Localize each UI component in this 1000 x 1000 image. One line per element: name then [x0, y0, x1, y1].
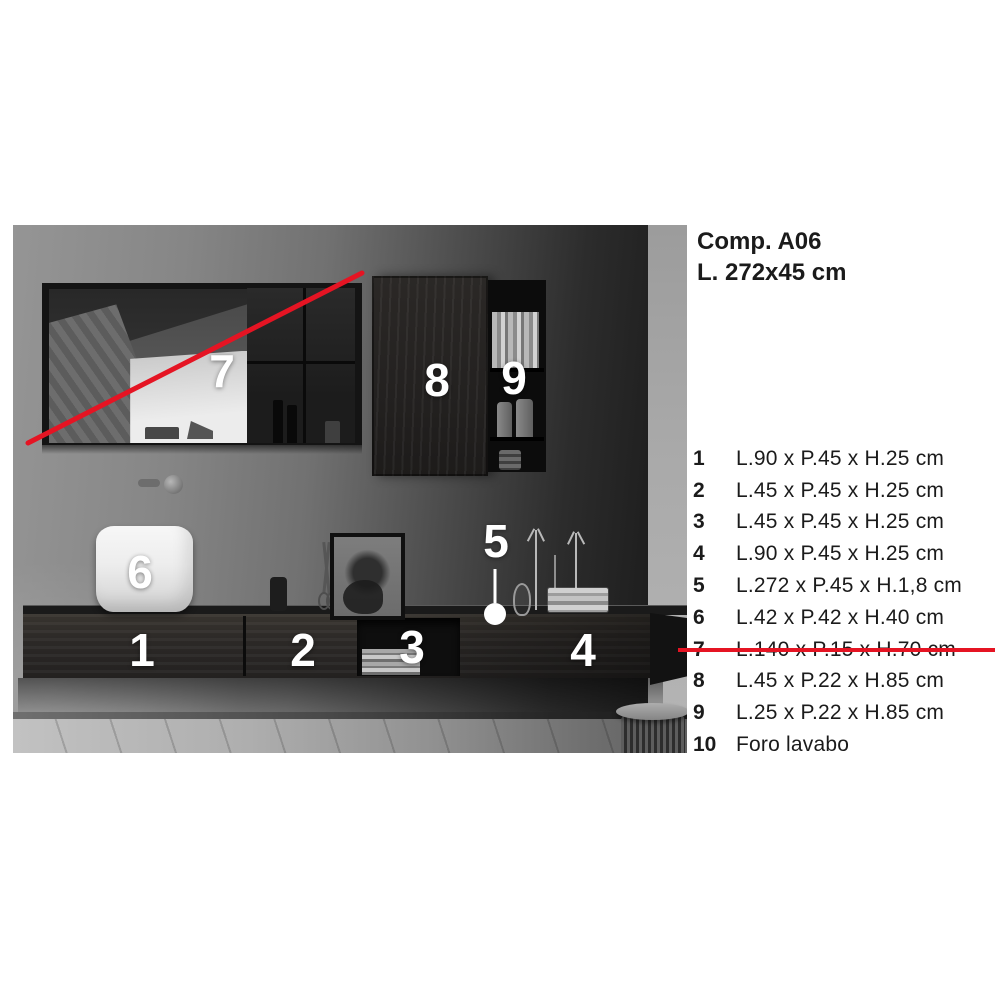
spec-num: 3 [693, 510, 736, 534]
photo-label-1: 1 [129, 627, 155, 673]
spec-row-2: 2 L.45 x P.45 x H.25 cm [693, 475, 1000, 507]
item-7-strikethrough-line [678, 648, 995, 652]
spec-num: 1 [693, 447, 736, 471]
spec-text: L.90 x P.45 x H.25 cm [736, 447, 944, 471]
spec-num: 2 [693, 479, 736, 503]
spec-text: L.90 x P.45 x H.25 cm [736, 542, 944, 566]
spec-num: 5 [693, 574, 736, 598]
callout-5-dot [484, 603, 506, 625]
mirror-crossout-line [28, 273, 362, 443]
spec-text: L.45 x P.45 x H.25 cm [736, 479, 944, 503]
photo-label-6: 6 [127, 549, 153, 595]
composition-size: L. 272x45 cm [697, 257, 846, 288]
spec-num: 6 [693, 606, 736, 630]
composition-title: Comp. A06 [697, 226, 846, 257]
spec-text: L.45 x P.45 x H.25 cm [736, 510, 944, 534]
spec-row-4: 4 L.90 x P.45 x H.25 cm [693, 538, 1000, 570]
spec-row-3: 3 L.45 x P.45 x H.25 cm [693, 507, 1000, 539]
spec-num: 8 [693, 669, 736, 693]
product-photo: 1 2 3 4 5 6 7 8 9 [13, 225, 687, 753]
spec-list: 1 L.90 x P.45 x H.25 cm 2 L.45 x P.45 x … [693, 443, 1000, 761]
photo-label-8: 8 [424, 357, 450, 403]
spec-num: 4 [693, 542, 736, 566]
spec-num: 10 [693, 733, 736, 757]
spec-text: L.25 x P.22 x H.85 cm [736, 701, 944, 725]
spec-row-8: 8 L.45 x P.22 x H.85 cm [693, 666, 1000, 698]
spec-row-9: 9 L.25 x P.22 x H.85 cm [693, 697, 1000, 729]
page: { "header": { "title": "Comp. A06", "sub… [0, 0, 1000, 1000]
photo-label-9: 9 [501, 355, 527, 401]
photo-label-5: 5 [483, 518, 509, 564]
spec-row-6: 6 L.42 x P.42 x H.40 cm [693, 602, 1000, 634]
spec-text: L.272 x P.45 x H.1,8 cm [736, 574, 962, 598]
spec-text: Foro lavabo [736, 733, 849, 757]
photo-label-4: 4 [570, 627, 596, 673]
photo-label-3: 3 [399, 624, 425, 670]
photo-label-2: 2 [290, 627, 316, 673]
spec-num: 9 [693, 701, 736, 725]
spec-text: L.45 x P.22 x H.85 cm [736, 669, 944, 693]
spec-row-1: 1 L.90 x P.45 x H.25 cm [693, 443, 1000, 475]
spec-text: L.42 x P.42 x H.40 cm [736, 606, 944, 630]
spec-row-5: 5 L.272 x P.45 x H.1,8 cm [693, 570, 1000, 602]
composition-header: Comp. A06 L. 272x45 cm [697, 226, 846, 288]
photo-label-7: 7 [209, 348, 235, 394]
spec-row-10: 10 Foro lavabo [693, 729, 1000, 761]
